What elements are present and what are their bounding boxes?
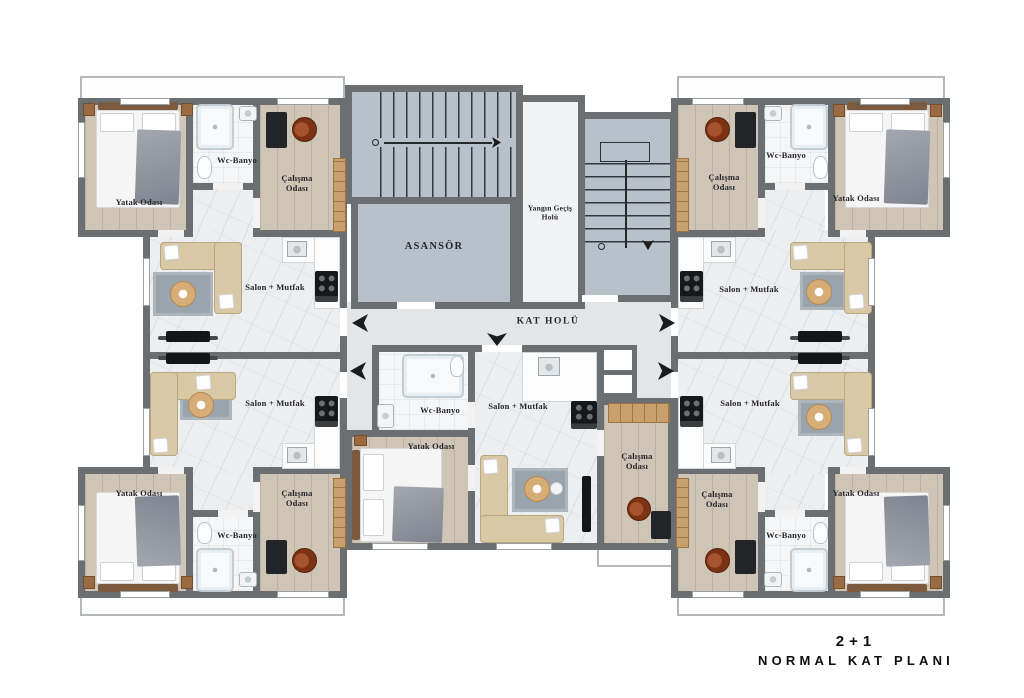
bed-pillow (100, 113, 134, 132)
toilet (813, 522, 828, 544)
label-bedroom-top-right: Yatak Odası (833, 194, 880, 204)
label-living-top-right: Salon + Mutfak (719, 285, 779, 295)
tv (166, 331, 210, 342)
nightstand (181, 576, 193, 589)
label-bathroom-top-right: Wc-Banyo (766, 151, 806, 161)
balcony-door (692, 591, 744, 598)
bed-throw-blanket (134, 495, 180, 566)
window (860, 98, 910, 105)
sofa-pillow (152, 437, 168, 453)
entrance-door-opening (482, 345, 522, 352)
coffee-table (806, 404, 832, 430)
bed-throw-blanket (883, 495, 929, 566)
sofa-pillow (846, 437, 862, 453)
door-opening (840, 230, 866, 237)
sofa-pillow (163, 244, 179, 260)
wardrobe (333, 478, 346, 548)
washbasin (239, 106, 257, 121)
toilet (813, 156, 828, 179)
nightstand (930, 104, 942, 117)
nightstand (181, 103, 193, 116)
door-opening (253, 482, 260, 512)
door-opening (218, 510, 248, 517)
window (120, 98, 170, 105)
nightstand (83, 576, 95, 589)
shower-tray (790, 104, 828, 150)
wardrobe (676, 158, 689, 232)
coffee-table (188, 392, 214, 418)
stair-start-ring-fire (598, 243, 605, 250)
desk (651, 511, 671, 539)
floor-plan-canvas: Yatak Odası Wc-Banyo Çalışma Odası Salon… (0, 0, 1024, 698)
sofa-pillow (792, 244, 808, 260)
bed-throw-blanket (392, 487, 443, 543)
label-bedroom-bottom-center: Yatak Odası (408, 442, 455, 452)
bed-pillow (363, 454, 384, 492)
door-opening (253, 198, 260, 228)
door-opening (340, 308, 347, 336)
label-study-bottom-left: Çalışma Odası (273, 489, 321, 509)
door-opening (758, 482, 765, 512)
door-opening (597, 430, 604, 456)
stove (571, 401, 597, 429)
door-opening (582, 295, 618, 302)
sofa-pillow (482, 458, 498, 474)
kitchen-sink (287, 241, 307, 257)
washbasin (764, 572, 782, 587)
toilet (197, 522, 212, 544)
balcony-door (277, 98, 329, 105)
label-living-top-left: Salon + Mutfak (245, 283, 305, 293)
coffee-table (524, 476, 550, 502)
nightstand (930, 576, 942, 589)
window (78, 122, 85, 178)
label-bathroom-bottom-right: Wc-Banyo (766, 531, 806, 541)
plan-title-block: 2+1 NORMAL KAT PLANI (700, 633, 1012, 668)
bed-throw-blanket (134, 129, 180, 205)
door-opening (158, 230, 184, 237)
bed (96, 492, 180, 592)
window (943, 122, 950, 178)
door-opening (340, 372, 347, 398)
coffee-table (170, 281, 196, 307)
door-opening (213, 183, 243, 190)
sofa-pillow (848, 293, 864, 309)
balcony-ledge-top-right (677, 76, 945, 100)
label-living-bottom-left: Salon + Mutfak (245, 399, 305, 409)
shower-tray (790, 548, 828, 592)
door-opening (671, 372, 678, 398)
window (120, 591, 170, 598)
desk (735, 540, 756, 574)
bed-throw-blanket (883, 129, 929, 205)
bed (96, 102, 180, 208)
kitchen-sink (711, 241, 731, 257)
wardrobe (333, 158, 346, 232)
tv (798, 353, 842, 364)
fire-escape-hall (516, 95, 585, 309)
stair-landing-fire (600, 142, 650, 162)
label-living-bottom-center: Salon + Mutfak (488, 402, 548, 412)
desk (266, 540, 287, 574)
label-study-top-right: Çalışma Odası (700, 173, 748, 193)
label-elevator: ASANSÖR (405, 241, 464, 253)
balcony-ledge-top-left (80, 76, 345, 100)
door-opening (775, 510, 805, 517)
stair-treads-fire (585, 163, 670, 248)
bed-pillow (100, 562, 134, 581)
door-opening (468, 402, 475, 428)
desk (266, 112, 287, 148)
label-bedroom-top-left: Yatak Odası (116, 198, 163, 208)
stove (315, 271, 338, 302)
stair-rail-main (384, 142, 492, 144)
window (143, 408, 150, 456)
bed-pillow (363, 499, 384, 537)
window (78, 505, 85, 561)
sofa-pillow (218, 293, 234, 309)
kitchen-sink (538, 357, 560, 376)
desk-chair (292, 548, 317, 573)
stove (680, 271, 703, 302)
sofa-pillow (792, 374, 808, 390)
washbasin (377, 404, 394, 428)
label-bedroom-bottom-right: Yatak Odası (833, 489, 880, 499)
desk-chair (627, 497, 651, 521)
bed-pillow (849, 113, 883, 132)
elevator-door-opening (397, 302, 435, 309)
label-living-bottom-right: Salon + Mutfak (720, 399, 780, 409)
window (860, 591, 910, 598)
window (496, 543, 552, 550)
stair-rail-fire (625, 160, 627, 248)
tv (166, 353, 210, 364)
label-study-bottom-right: Çalışma Odası (693, 490, 741, 510)
tv (582, 476, 591, 532)
bed (845, 492, 929, 592)
toilet (450, 356, 464, 377)
desk (735, 112, 756, 148)
coffee-table (806, 279, 832, 305)
door-opening (775, 183, 805, 190)
bed (845, 102, 929, 208)
label-fire-escape-hall: Yangın Geçiş Holü (523, 204, 577, 221)
label-floor-hall: KAT HOLÜ (517, 317, 580, 328)
bed (352, 448, 442, 542)
washbasin (764, 106, 782, 121)
kitchen-sink (711, 447, 731, 463)
shower-tray (196, 548, 234, 592)
sofa-pillow (544, 517, 560, 533)
stair-start-ring-main (372, 139, 379, 146)
balcony-ledge-bottom-center (597, 548, 673, 567)
wardrobe (608, 403, 670, 423)
plan-type-title: 2+1 (700, 633, 1012, 650)
nightstand (833, 576, 845, 589)
sofa-pillow (195, 374, 211, 390)
bed-pillow (849, 562, 883, 581)
window (372, 543, 428, 550)
stove (680, 396, 703, 427)
wardrobe (676, 478, 689, 548)
window (943, 505, 950, 561)
door-opening (158, 467, 184, 474)
desk-chair (292, 117, 317, 142)
nightstand (354, 435, 367, 446)
label-bathroom-top-left: Wc-Banyo (217, 156, 257, 166)
plan-name-title: NORMAL KAT PLANI (700, 653, 1012, 668)
label-bathroom-bottom-center: Wc-Banyo (420, 406, 460, 416)
door-opening (840, 467, 866, 474)
decor-plate (550, 482, 563, 495)
balcony-door (692, 98, 744, 105)
balcony-door (277, 591, 329, 598)
door-opening (758, 198, 765, 228)
kitchen-sink (287, 447, 307, 463)
label-bedroom-bottom-left: Yatak Odası (116, 489, 163, 499)
label-study-top-left: Çalışma Odası (273, 174, 321, 194)
label-bathroom-bottom-left: Wc-Banyo (217, 531, 257, 541)
tv (798, 331, 842, 342)
door-opening (468, 465, 475, 491)
bed-headboard (352, 450, 360, 540)
desk-chair (705, 117, 730, 142)
nightstand (83, 103, 95, 116)
window (868, 258, 875, 306)
label-study-bottom-center: Çalışma Odası (613, 452, 661, 472)
toilet (197, 156, 212, 179)
window (143, 258, 150, 306)
shower-tray (196, 104, 234, 150)
stove (315, 396, 338, 427)
window (868, 408, 875, 456)
washbasin (239, 572, 257, 587)
nightstand (833, 104, 845, 117)
desk-chair (705, 548, 730, 573)
